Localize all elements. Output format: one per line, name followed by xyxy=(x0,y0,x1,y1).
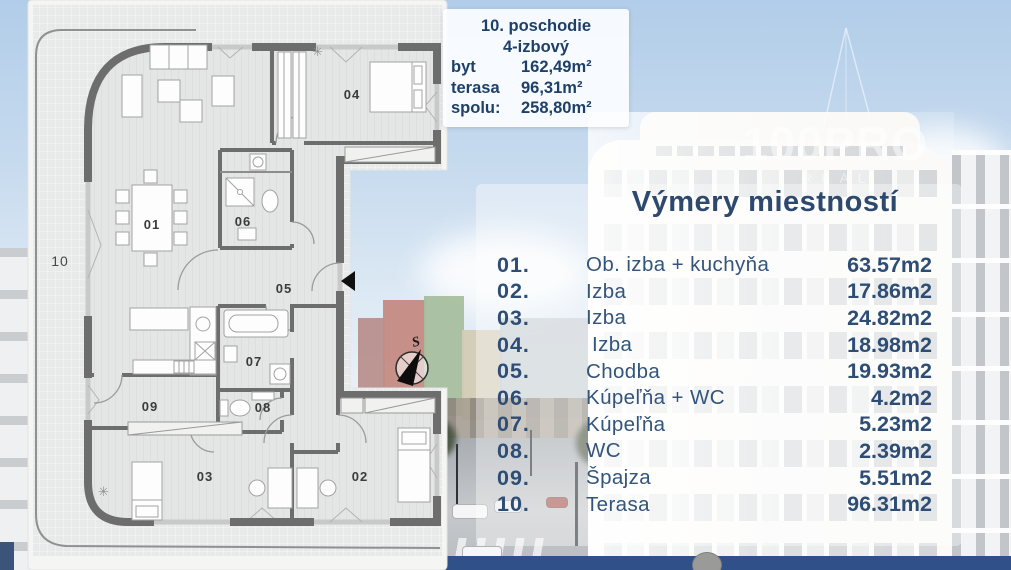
room-name: Špajza xyxy=(586,466,807,490)
room-number: 01. xyxy=(490,253,586,278)
room-name: Izba xyxy=(586,306,807,330)
table-row: 04. Izba 18.98m2 xyxy=(490,332,932,359)
room-label-01: 01 xyxy=(144,217,160,232)
table-row: 02. Izba 17.86m2 xyxy=(490,279,932,306)
room-label-10: 10 xyxy=(51,253,69,269)
room-number: 06. xyxy=(490,386,586,411)
watermark-brand: 100PRO xyxy=(742,120,982,168)
bottom-bar xyxy=(445,556,1011,570)
room-area: 96.31m2 xyxy=(807,492,932,517)
info-label: byt xyxy=(451,57,521,78)
watermark-logo: 100PRO REAL xyxy=(742,120,982,186)
room-number: 03. xyxy=(490,306,586,331)
info-label: spolu: xyxy=(451,98,521,119)
compass-north-label: S xyxy=(410,334,422,351)
room-area: 18.98m2 xyxy=(807,333,932,358)
table-row: 03. Izba 24.82m2 xyxy=(490,305,932,332)
room-label-09: 09 xyxy=(142,399,158,414)
room-label-08: 08 xyxy=(255,400,271,415)
compass-icon: S xyxy=(396,334,428,386)
room-area: 63.57m2 xyxy=(807,253,932,278)
room-area: 4.2m2 xyxy=(807,386,932,411)
room-name: Kúpeľňa xyxy=(586,413,807,437)
table-row: 05. Chodba 19.93m2 xyxy=(490,358,932,385)
info-value: 162,49m² xyxy=(521,57,592,78)
table-row: 07. Kúpeľňa 5.23m2 xyxy=(490,412,932,439)
room-area: 5.51m2 xyxy=(807,466,932,491)
room-name: Ob. izba + kuchyňa xyxy=(586,253,807,277)
room-area: 24.82m2 xyxy=(807,306,932,331)
room-number: 07. xyxy=(490,412,586,437)
room-label-06: 06 xyxy=(235,214,251,229)
table-row: 06. Kúpeľňa + WC 4.2m2 xyxy=(490,385,932,412)
room-label-07: 07 xyxy=(246,354,262,369)
room-label-03: 03 xyxy=(197,469,213,484)
floor-plan: ✳ ✳ 01 02 03 04 05 06 07 08 09 10 S xyxy=(0,0,470,570)
apartment-info-card: 10. poschodie 4-izbový byt 162,49m² tera… xyxy=(443,9,629,127)
apartment-floor xyxy=(88,47,437,522)
info-value: 96,31m² xyxy=(521,78,582,99)
room-name: Izba xyxy=(586,333,807,357)
room-name: Chodba xyxy=(586,360,807,384)
room-number: 04. xyxy=(490,333,586,358)
plant-icon: ✳ xyxy=(98,484,109,499)
table-row: 09. Špajza 5.51m2 xyxy=(490,465,932,492)
room-name: Kúpeľňa + WC xyxy=(586,386,807,410)
room-number: 10. xyxy=(490,492,586,517)
room-area: 17.86m2 xyxy=(807,279,932,304)
room-label-04: 04 xyxy=(344,87,360,102)
info-value: 258,80m² xyxy=(521,98,592,119)
room-name: Izba xyxy=(586,280,807,304)
table-row: 01. Ob. izba + kuchyňa 63.57m2 xyxy=(490,252,932,279)
room-number: 08. xyxy=(490,439,586,464)
room-number: 02. xyxy=(490,279,586,304)
table-row: 10. Terasa 96.31m2 xyxy=(490,491,932,518)
info-row-terasa: terasa 96,31m² xyxy=(451,78,621,99)
rooms-table-title: Výmery miestností xyxy=(560,186,970,219)
floor-line: 10. poschodie xyxy=(451,16,621,37)
info-label: terasa xyxy=(451,78,521,99)
room-number: 05. xyxy=(490,359,586,384)
info-row-byt: byt 162,49m² xyxy=(451,57,621,78)
room-area: 5.23m2 xyxy=(807,412,932,437)
room-area: 2.39m2 xyxy=(807,439,932,464)
type-line: 4-izbový xyxy=(451,37,621,58)
slide: 100PRO REAL xyxy=(0,0,1011,570)
plant-icon: ✳ xyxy=(312,44,323,59)
info-row-spolu: spolu: 258,80m² xyxy=(451,98,621,119)
room-name: Terasa xyxy=(586,493,807,517)
room-number: 09. xyxy=(490,466,586,491)
room-area: 19.93m2 xyxy=(807,359,932,384)
room-label-02: 02 xyxy=(352,469,368,484)
room-name: WC xyxy=(586,439,807,463)
rooms-table: 01. Ob. izba + kuchyňa 63.57m2 02. Izba … xyxy=(490,252,932,518)
table-row: 08. WC 2.39m2 xyxy=(490,438,932,465)
room-label-05: 05 xyxy=(276,281,292,296)
